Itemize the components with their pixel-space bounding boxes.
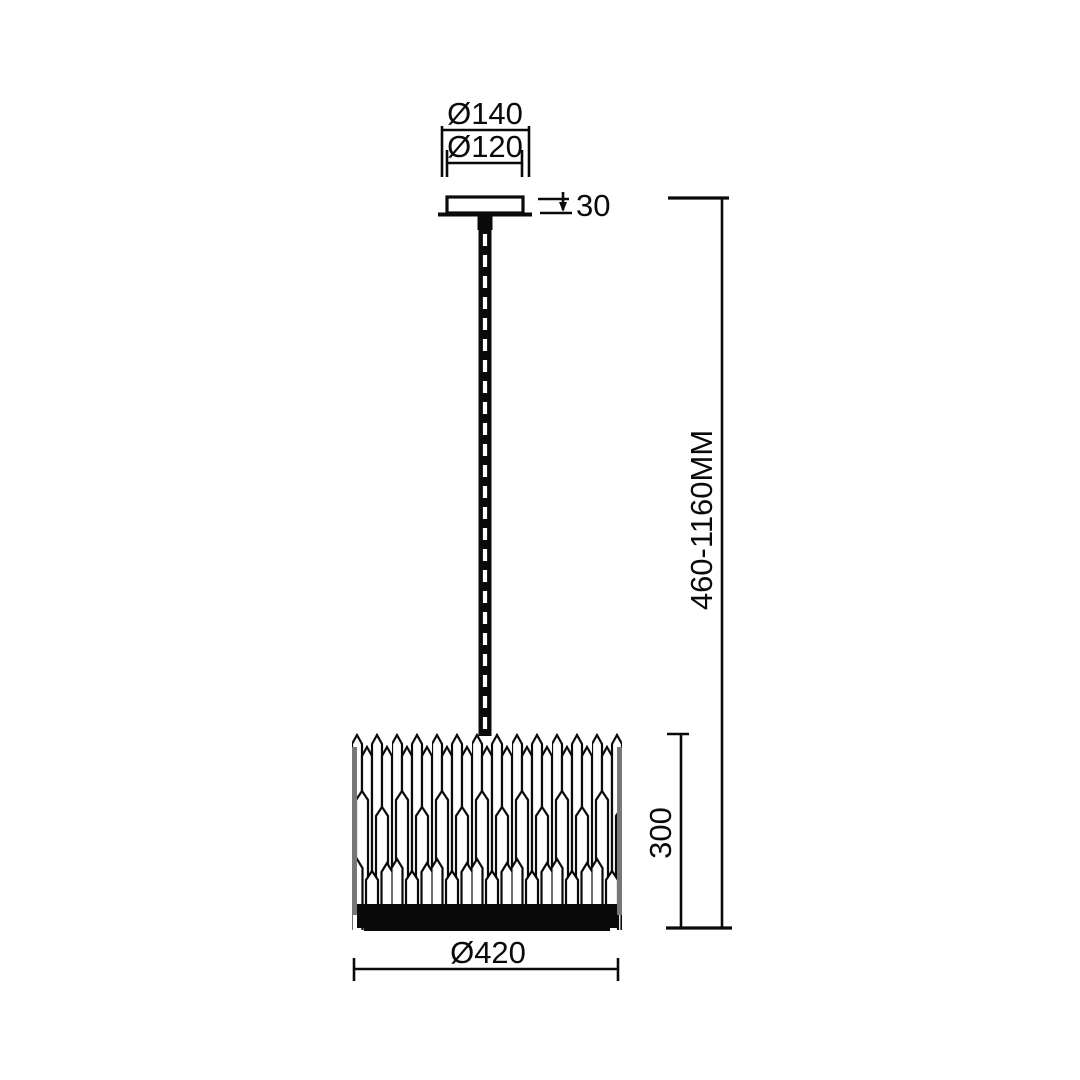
dim-arrowhead-down	[559, 202, 567, 212]
canopy-base-plate	[438, 213, 532, 217]
shade-bottom-rim	[357, 904, 617, 928]
shade-left-edge	[352, 747, 357, 915]
shade-crystal-rods	[352, 733, 622, 930]
dimension-shade-height: 300	[643, 734, 689, 928]
canopy-body	[447, 197, 523, 213]
canopy-stem	[478, 216, 493, 230]
dimension-label-canopy-inner: Ø120	[447, 129, 523, 164]
dimension-label-suspension-range: 460-1160MM	[684, 430, 719, 610]
crystal-shade	[352, 733, 622, 931]
shade-bottom-edge	[364, 926, 610, 931]
dimension-label-canopy-height: 30	[576, 188, 610, 223]
dimension-label-shade-diameter: Ø420	[450, 935, 526, 970]
shade-right-edge	[617, 747, 622, 915]
suspension-chain	[479, 228, 492, 736]
dimension-shade-diameter: Ø420	[354, 935, 618, 981]
dimension-label-shade-height: 300	[643, 807, 678, 859]
pendant-lamp-technical-drawing: Ø140 Ø120 30 460-1160MM 300 Ø420	[0, 0, 1080, 1080]
dimension-canopy-height: 30	[538, 188, 610, 223]
dimension-canopy-inner: Ø120	[447, 129, 523, 177]
drawing-canvas: Ø140 Ø120 30 460-1160MM 300 Ø420	[0, 0, 1080, 1080]
dimension-label-canopy-outer: Ø140	[447, 96, 523, 131]
canopy	[438, 197, 532, 230]
